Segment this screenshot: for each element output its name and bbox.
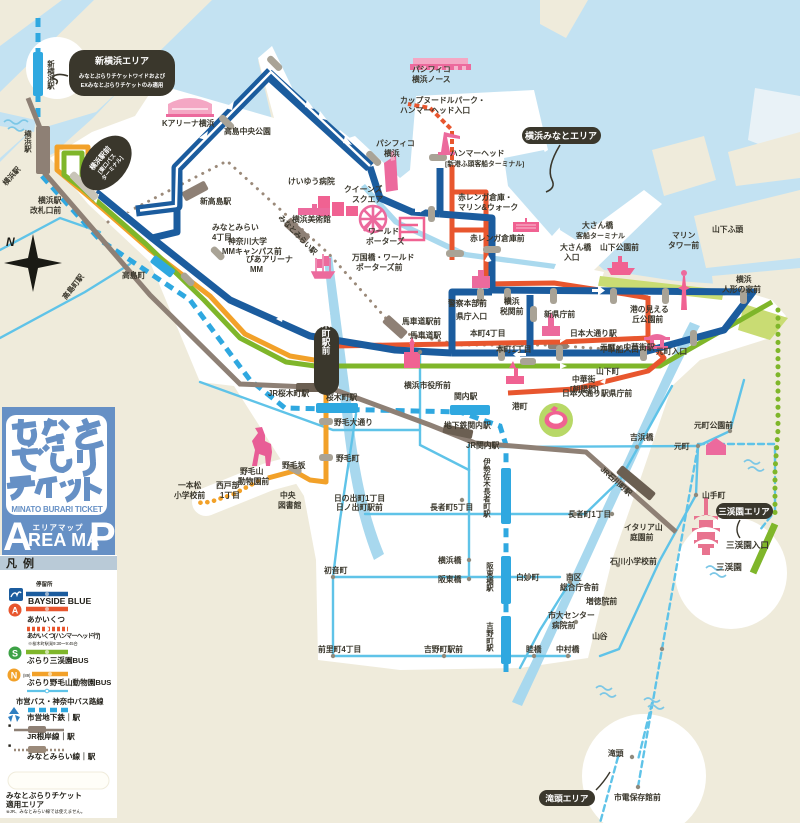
svg-text:Kアリーナ横浜: Kアリーナ横浜 bbox=[162, 118, 215, 128]
svg-text:みなとぶらりチケット: みなとぶらりチケット bbox=[6, 791, 82, 800]
svg-text:けいゆう病院: けいゆう病院 bbox=[288, 176, 335, 186]
svg-text:パシフィコ: パシフィコ bbox=[376, 138, 415, 148]
svg-text:赤レンガ倉庫・: 赤レンガ倉庫・ bbox=[458, 192, 513, 202]
svg-text:ポーターズ: ポーターズ bbox=[366, 236, 405, 246]
svg-text:横浜: 横浜 bbox=[504, 296, 520, 306]
svg-text:改札口前: 改札口前 bbox=[30, 205, 61, 215]
svg-text:※JR、みなとみらい線では使えません。: ※JR、みなとみらい線では使えません。 bbox=[6, 808, 85, 815]
svg-text:初音町: 初音町 bbox=[324, 565, 348, 575]
svg-text:伊勢佐木長者町駅: 伊勢佐木長者町駅 bbox=[482, 458, 491, 519]
svg-text:小学校前: 小学校前 bbox=[173, 490, 205, 500]
svg-text:スクエア: スクエア bbox=[352, 194, 383, 204]
svg-text:日本大通り駅県庁前: 日本大通り駅県庁前 bbox=[562, 388, 632, 398]
svg-text:吉野町駅前: 吉野町駅前 bbox=[424, 644, 463, 654]
svg-text:入口: 入口 bbox=[563, 253, 580, 262]
svg-text:N: N bbox=[6, 235, 15, 249]
svg-text:中村橋: 中村橋 bbox=[556, 644, 580, 654]
svg-text:ぶらり三渓園BUS: ぶらり三渓園BUS bbox=[26, 655, 89, 665]
svg-text:中央: 中央 bbox=[280, 490, 296, 500]
svg-text:ぶらり野毛山動物園BUS: ぶらり野毛山動物園BUS bbox=[26, 677, 111, 687]
svg-text:横浜橋: 横浜橋 bbox=[438, 555, 462, 565]
svg-text:市営バス・神奈中バス路線: 市営バス・神奈中バス路線 bbox=[16, 697, 104, 706]
svg-text:ワールド: ワールド bbox=[368, 227, 399, 236]
svg-text:関内駅: 関内駅 bbox=[454, 391, 478, 401]
svg-text:山下公園前: 山下公園前 bbox=[600, 242, 639, 252]
svg-text:マリン: マリン bbox=[672, 231, 696, 240]
svg-text:地下鉄関内駅: 地下鉄関内駅 bbox=[444, 420, 491, 430]
svg-text:元町入口: 元町入口 bbox=[656, 347, 687, 356]
svg-text:中華街: 中華街 bbox=[572, 374, 596, 384]
svg-text:滝頭エリア: 滝頭エリア bbox=[546, 793, 589, 804]
svg-text:JR根岸線｜駅: JR根岸線｜駅 bbox=[27, 731, 75, 741]
svg-text:イタリア山: イタリア山 bbox=[624, 522, 663, 532]
svg-text:赤レンガ倉庫前: 赤レンガ倉庫前 bbox=[470, 233, 525, 243]
svg-text:新高島駅: 新高島駅 bbox=[200, 196, 231, 206]
svg-text:野毛町: 野毛町 bbox=[336, 453, 360, 463]
svg-text:横浜みなとエリア: 横浜みなとエリア bbox=[525, 130, 597, 141]
svg-text:前里町4丁目: 前里町4丁目 bbox=[318, 644, 361, 654]
svg-text:丘公園前: 丘公園前 bbox=[632, 314, 663, 324]
svg-text:あかいくつ: あかいくつ bbox=[27, 615, 65, 624]
svg-text:港町: 港町 bbox=[512, 401, 528, 411]
svg-text:港の見える: 港の見える bbox=[630, 304, 669, 314]
svg-text:ぴあアリーナ: ぴあアリーナ bbox=[246, 254, 293, 264]
svg-text:動物園前: 動物園前 bbox=[238, 476, 269, 486]
svg-text:阪東橋駅: 阪東橋駅 bbox=[485, 562, 494, 593]
svg-text:日の出町1丁目: 日の出町1丁目 bbox=[334, 493, 385, 503]
svg-text:1丁目: 1丁目 bbox=[220, 491, 240, 500]
svg-text:市営地下鉄｜駅: 市営地下鉄｜駅 bbox=[27, 712, 81, 722]
svg-text:馬車道駅: 馬車道駅 bbox=[410, 330, 441, 340]
svg-text:ハンマーヘッド入口: ハンマーヘッド入口 bbox=[400, 106, 470, 115]
svg-text:吉野町駅: 吉野町駅 bbox=[485, 622, 494, 653]
svg-text:MINATO BURARI TICKET: MINATO BURARI TICKET bbox=[11, 505, 103, 514]
svg-text:山手町: 山手町 bbox=[702, 490, 726, 500]
svg-text:あかいくつ[ハンマーヘッド行]: あかいくつ[ハンマーヘッド行] bbox=[27, 632, 100, 640]
svg-text:EXみなとぶらりチケットのみ適用: EXみなとぶらりチケットのみ適用 bbox=[81, 81, 164, 89]
svg-text:P: P bbox=[89, 515, 116, 559]
svg-text:市大センター: 市大センター bbox=[548, 610, 595, 620]
svg-text:横浜美術館: 横浜美術館 bbox=[292, 214, 331, 224]
svg-text:神奈川大学: 神奈川大学 bbox=[228, 236, 267, 246]
svg-text:長者町5丁目: 長者町5丁目 bbox=[430, 502, 473, 512]
svg-text:日ノ出町駅前: 日ノ出町駅前 bbox=[336, 502, 383, 512]
svg-text:三渓園エリア: 三渓園エリア bbox=[718, 506, 770, 517]
svg-text:横浜市役所前: 横浜市役所前 bbox=[404, 380, 451, 390]
svg-text:みなとみらい: みなとみらい bbox=[212, 223, 259, 232]
svg-text:大さん橋: 大さん橋 bbox=[560, 242, 591, 252]
svg-text:野毛大通り: 野毛大通り bbox=[334, 417, 373, 427]
svg-text:新横浜エリア: 新横浜エリア bbox=[95, 55, 149, 66]
svg-text:JR桜木町駅: JR桜木町駅 bbox=[268, 388, 309, 398]
svg-text:日本大通り駅: 日本大通り駅 bbox=[570, 328, 617, 338]
svg-text:図書館: 図書館 bbox=[278, 500, 302, 510]
svg-text:桜木町駅前: 桜木町駅前 bbox=[321, 310, 331, 355]
svg-text:新県庁前: 新県庁前 bbox=[544, 309, 575, 319]
svg-text:元町・中華街駅: 元町・中華街駅 bbox=[600, 342, 655, 352]
svg-text:人形の家前: 人形の家前 bbox=[722, 284, 761, 294]
svg-text:元町: 元町 bbox=[674, 442, 690, 451]
svg-text:吉浜橋: 吉浜橋 bbox=[630, 432, 654, 442]
svg-text:ハンマーヘッド: ハンマーヘッド bbox=[450, 149, 505, 158]
svg-text:馬車道駅前: 馬車道駅前 bbox=[402, 316, 441, 326]
svg-text:滝頭: 滝頭 bbox=[608, 748, 624, 758]
svg-text:市電保存館前: 市電保存館前 bbox=[614, 792, 661, 802]
svg-text:横浜駅: 横浜駅 bbox=[23, 130, 32, 154]
svg-text:マリン&ウォーク: マリン&ウォーク bbox=[458, 202, 518, 212]
svg-text:庭園前: 庭園前 bbox=[630, 532, 654, 542]
svg-text:パシフィコ: パシフィコ bbox=[412, 64, 451, 74]
svg-text:A: A bbox=[12, 606, 19, 616]
svg-text:本町1丁目: 本町1丁目 bbox=[496, 344, 532, 354]
svg-text:本町4丁目: 本町4丁目 bbox=[470, 328, 506, 338]
svg-text:みなとみらい線｜駅: みなとみらい線｜駅 bbox=[27, 751, 96, 761]
svg-text:[新港ふ頭客船ターミナル]: [新港ふ頭客船ターミナル] bbox=[445, 159, 524, 168]
svg-text:横浜駅: 横浜駅 bbox=[38, 195, 62, 205]
svg-text:元町公園前: 元町公園前 bbox=[694, 420, 733, 430]
svg-text:三渓園入口: 三渓園入口 bbox=[726, 539, 769, 550]
svg-text:凡例: 凡例 bbox=[6, 556, 40, 570]
svg-text:JR関内駅: JR関内駅 bbox=[466, 440, 500, 450]
svg-text:総合庁舎前: 総合庁舎前 bbox=[560, 582, 599, 592]
svg-text:警察本部前: 警察本部前 bbox=[448, 298, 487, 308]
svg-text:みなとぶらりチケットワイドおよび: みなとぶらりチケットワイドおよび bbox=[79, 72, 166, 80]
svg-text:タワー前: タワー前 bbox=[668, 240, 699, 250]
svg-text:山下ふ頭: 山下ふ頭 bbox=[712, 224, 743, 234]
svg-text:ポーターズ前: ポーターズ前 bbox=[356, 262, 403, 272]
svg-text:南区: 南区 bbox=[566, 572, 582, 582]
svg-text:横浜ノース: 横浜ノース bbox=[412, 74, 451, 84]
svg-text:客船ターミナル: 客船ターミナル bbox=[575, 231, 625, 240]
svg-text:三渓園: 三渓園 bbox=[716, 561, 742, 572]
svg-text:野毛坂: 野毛坂 bbox=[282, 460, 306, 470]
svg-text:※桜木町駅発9:30～9:45台: ※桜木町駅発9:30～9:45台 bbox=[28, 640, 78, 647]
svg-text:阪東橋: 阪東橋 bbox=[438, 574, 462, 584]
svg-text:カップヌードルパーク・: カップヌードルパーク・ bbox=[400, 95, 486, 105]
svg-text:横浜: 横浜 bbox=[736, 274, 752, 284]
svg-text:大さん橋: 大さん橋 bbox=[582, 220, 613, 230]
svg-text:野毛山: 野毛山 bbox=[240, 466, 264, 476]
svg-text:県庁入口: 県庁入口 bbox=[456, 311, 487, 321]
svg-text:山下町: 山下町 bbox=[596, 366, 620, 376]
svg-text:クイーンズ: クイーンズ bbox=[344, 184, 383, 194]
svg-text:■: ■ bbox=[8, 723, 11, 729]
svg-text:N: N bbox=[11, 671, 18, 681]
svg-text:新横浜駅: 新横浜駅 bbox=[46, 60, 55, 91]
svg-text:睦橋: 睦橋 bbox=[526, 644, 542, 654]
svg-text:BAYSIDE BLUE: BAYSIDE BLUE bbox=[28, 596, 91, 606]
svg-text:停留所: 停留所 bbox=[36, 580, 53, 588]
svg-text:税関前: 税関前 bbox=[500, 306, 524, 316]
svg-text:高島町: 高島町 bbox=[122, 270, 146, 280]
svg-text:病院前: 病院前 bbox=[552, 620, 576, 630]
svg-text:S: S bbox=[12, 649, 18, 659]
svg-text:桜木町駅: 桜木町駅 bbox=[326, 392, 357, 402]
svg-text:適用エリア: 適用エリア bbox=[6, 799, 44, 809]
svg-text:■: ■ bbox=[8, 743, 11, 749]
svg-text:高島中央公園: 高島中央公園 bbox=[224, 126, 271, 136]
svg-text:万国橋・ワールド: 万国橋・ワールド bbox=[351, 252, 415, 262]
svg-text:増徳院前: 増徳院前 bbox=[586, 596, 617, 606]
svg-text:横浜: 横浜 bbox=[384, 148, 400, 158]
svg-text:一本松: 一本松 bbox=[178, 480, 202, 490]
svg-text:西戸部: 西戸部 bbox=[216, 480, 240, 490]
svg-text:MM: MM bbox=[250, 265, 263, 274]
